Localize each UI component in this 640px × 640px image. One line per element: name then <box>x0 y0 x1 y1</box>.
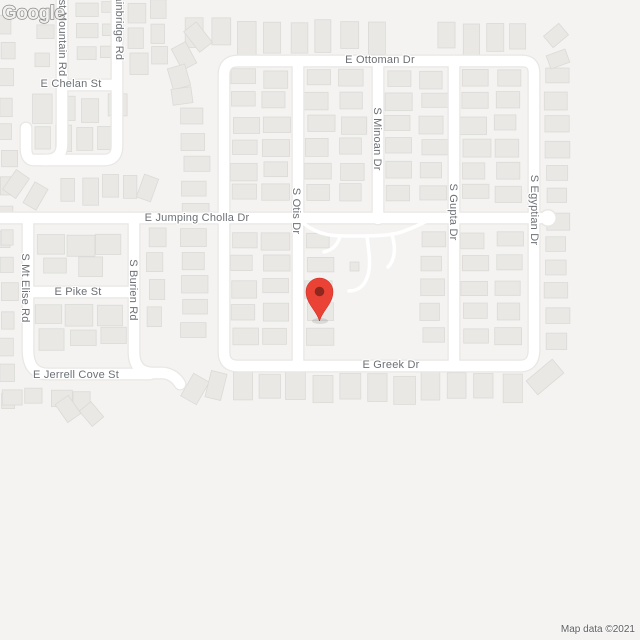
street-label-e-greek-dr: E Greek Dr <box>362 359 419 371</box>
street-label-e-chelan-st: E Chelan St <box>41 78 102 90</box>
map-attribution: Map data ©2021 <box>561 624 635 635</box>
street-label-bainbridge-rd: Bainbridge Rd <box>113 0 125 60</box>
map-canvas[interactable]: st Mountain Rd Bainbridge Rd E Chelan St… <box>0 0 640 640</box>
cul-de-sac <box>541 211 556 226</box>
street-label-e-ottoman-dr: E Ottoman Dr <box>345 54 415 66</box>
street-label-s-gupta-dr: S Gupta Dr <box>447 183 459 240</box>
street-label-e-pike-st: E Pike St <box>54 286 101 298</box>
street-label-s-otis-dr: S Otis Dr <box>290 188 302 234</box>
street-label-s-egyptian-dr: S Egyptian Dr <box>528 175 540 245</box>
svg-text:Google: Google <box>2 3 64 24</box>
street-label-s-minoan-dr: S Minoan Dr <box>371 107 383 170</box>
street-label-s-burien-rd: S Burien Rd <box>127 259 139 321</box>
map-tiles <box>0 0 640 640</box>
street-label-e-jumping-cholla-dr: E Jumping Cholla Dr <box>145 212 250 224</box>
street-label-s-mt-elise-rd: S Mt Elise Rd <box>19 253 31 322</box>
google-logo[interactable]: Google <box>0 0 72 26</box>
street-label-e-jerrell-cove-st: E Jerrell Cove St <box>33 369 119 381</box>
